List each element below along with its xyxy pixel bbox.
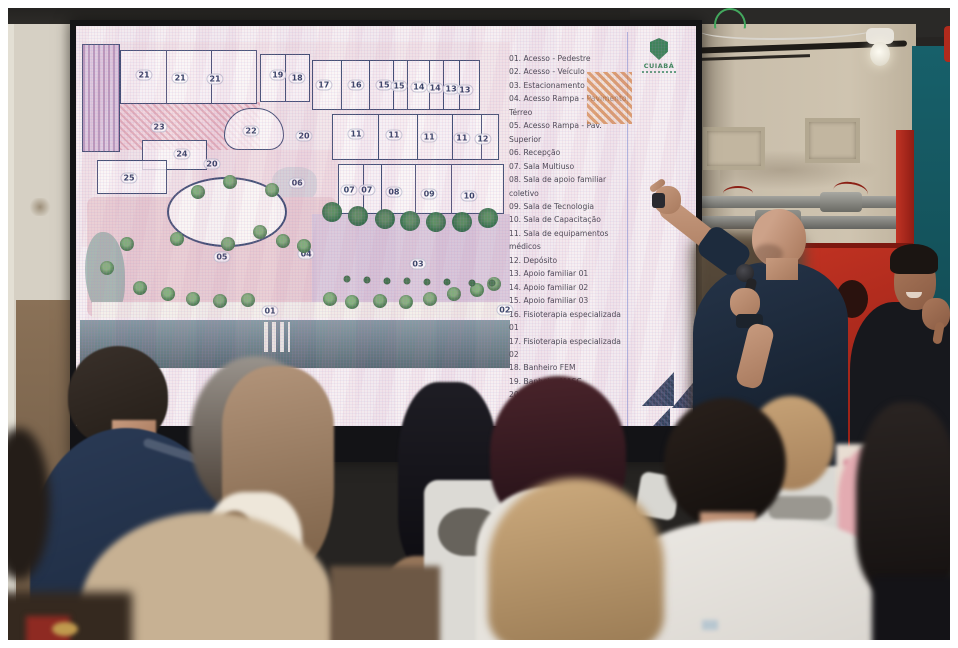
- palm-tree-symbol: [426, 212, 446, 232]
- floor-plan: 2121211918171615151414131323222420252011…: [80, 32, 510, 368]
- room-label: 21: [135, 70, 152, 81]
- wall-divider: [369, 61, 370, 109]
- shrub-symbol: [364, 277, 371, 284]
- legend-item: 15. Apoio familiar 03: [509, 294, 633, 307]
- room-label: 25: [120, 173, 137, 184]
- audience-far-right-top: [872, 576, 958, 648]
- shrub-symbol: [344, 276, 351, 283]
- tree-symbol: [345, 295, 359, 309]
- room-label: 10: [461, 190, 478, 201]
- room-label: 16: [347, 80, 364, 91]
- wall-divider: [417, 115, 418, 159]
- tree-symbol: [423, 292, 437, 306]
- tree-symbol: [170, 232, 184, 246]
- shrub-symbol: [444, 279, 451, 286]
- legend-item: 01. Acesso - Pedestre: [509, 52, 633, 65]
- red-wire: [723, 186, 753, 201]
- logo-text: CUIABÁ: [636, 62, 682, 70]
- room-label: 05: [213, 252, 230, 263]
- room-label: 07: [358, 184, 375, 195]
- room-label: 08: [385, 186, 402, 197]
- tree-symbol: [399, 295, 413, 309]
- tree-symbol: [447, 287, 461, 301]
- tree-symbol: [253, 225, 267, 239]
- palm-tree-symbol: [375, 209, 395, 229]
- sidewalk: [92, 302, 510, 318]
- room-label: 17: [315, 80, 332, 91]
- triangle-logo-part: [638, 408, 670, 426]
- shrub-symbol: [404, 278, 411, 285]
- palm-tree-symbol: [478, 208, 498, 228]
- tree-symbol: [323, 292, 337, 306]
- room-label: 21: [206, 74, 223, 85]
- legend-item: 13. Apoio familiar 01: [509, 267, 633, 280]
- palm-tree-symbol: [452, 212, 472, 232]
- room-label: 13: [456, 85, 473, 96]
- legend-item: 08. Sala de apoio familiar coletivo: [509, 173, 633, 200]
- tree-symbol: [221, 237, 235, 251]
- wall-panel: [703, 127, 765, 170]
- tree-symbol: [133, 281, 147, 295]
- audience-blonde-front: [488, 478, 664, 648]
- triangle-logo-part: [642, 372, 674, 406]
- tree-symbol: [297, 239, 311, 253]
- logo-subtext-bar: [642, 71, 676, 73]
- legend-item: 18. Banheiro FEM: [509, 361, 633, 374]
- shrub-symbol: [384, 278, 391, 285]
- audience-brown-patch: [330, 566, 440, 648]
- legend-item: 16. Fisioterapia especializada 01: [509, 308, 633, 335]
- shrub-symbol: [489, 280, 496, 287]
- room-label: 12: [474, 133, 491, 144]
- tree-symbol: [120, 237, 134, 251]
- tree-symbol: [186, 292, 200, 306]
- shrub-symbol: [469, 280, 476, 287]
- room-label: 11: [421, 132, 438, 143]
- room-label: 20: [295, 131, 312, 142]
- room-label: 22: [243, 126, 260, 137]
- room-label: 11: [385, 130, 402, 141]
- crosswalk: [264, 322, 290, 352]
- room-label: 23: [151, 122, 168, 133]
- room-label: 09: [421, 188, 438, 199]
- shield-icon: [650, 38, 668, 60]
- cuiaba-logo: CUIABÁ: [636, 38, 682, 90]
- wall-divider: [378, 115, 379, 159]
- room-label: 11: [347, 129, 364, 140]
- presenter-remote: [652, 193, 665, 208]
- tree-symbol: [161, 287, 175, 301]
- legend-item: 09. Sala de Tecnologia: [509, 200, 633, 213]
- wall-panel: [805, 118, 860, 163]
- plan-wing-hatch: [82, 44, 120, 152]
- chair-slot: [768, 496, 832, 520]
- legend-item: 14. Apoio familiar 02: [509, 281, 633, 294]
- wall-divider: [341, 61, 342, 109]
- legend-item: 11. Sala de equipamentos médicos: [509, 227, 633, 254]
- audience-far-right-hair: [856, 402, 958, 594]
- legend-item: 07. Sala Multiuso: [509, 160, 633, 173]
- tree-symbol: [373, 294, 387, 308]
- tree-symbol: [213, 294, 227, 308]
- palm-tree-symbol: [400, 211, 420, 231]
- wall-divider: [415, 165, 416, 213]
- pillar-stain: [28, 198, 52, 216]
- room-label: 21: [172, 73, 189, 84]
- room-label: 15: [390, 81, 407, 92]
- tree-symbol: [191, 185, 205, 199]
- wall-divider: [381, 165, 382, 213]
- room-label: 14: [427, 83, 444, 94]
- palm-tree-symbol: [322, 202, 342, 222]
- legend-item: 06. Recepção: [509, 146, 633, 159]
- room-label: 19: [269, 70, 286, 81]
- room-label: 03: [409, 258, 426, 269]
- room-label: 18: [289, 73, 306, 84]
- audience-white-tee-head: [664, 398, 786, 528]
- light-bulb: [870, 42, 890, 66]
- room-label: 24: [173, 148, 190, 159]
- tree-symbol: [276, 234, 290, 248]
- palm-tree-symbol: [348, 206, 368, 226]
- room-label: 14: [410, 82, 427, 93]
- legend-item: 12. Depósito: [509, 254, 633, 267]
- room-label: 11: [453, 132, 470, 143]
- room-label: 06: [289, 177, 306, 188]
- legend-item: 17. Fisioterapia especializada 02: [509, 335, 633, 362]
- presenter-neck: [766, 258, 798, 280]
- gold-bracelet: [52, 622, 78, 636]
- red-pipe: [944, 26, 958, 62]
- orange-hatch-block: [587, 72, 632, 124]
- tee-logo-mark: [702, 620, 718, 630]
- tree-symbol: [223, 175, 237, 189]
- presentation-photo: 2121211918171615151414131323222420252011…: [0, 0, 958, 648]
- tree-symbol: [241, 293, 255, 307]
- legend-item: 10. Sala de Capacitação: [509, 213, 633, 226]
- room-label: 07: [341, 184, 358, 195]
- wall-divider: [451, 165, 452, 213]
- tree-symbol: [100, 261, 114, 275]
- slide: 2121211918171615151414131323222420252011…: [76, 26, 696, 426]
- shrub-symbol: [424, 279, 431, 286]
- room-label: 20: [203, 159, 220, 170]
- wall-divider: [166, 51, 167, 103]
- tree-symbol: [265, 183, 279, 197]
- second-man-hair: [890, 244, 938, 274]
- room-label: 01: [261, 305, 278, 316]
